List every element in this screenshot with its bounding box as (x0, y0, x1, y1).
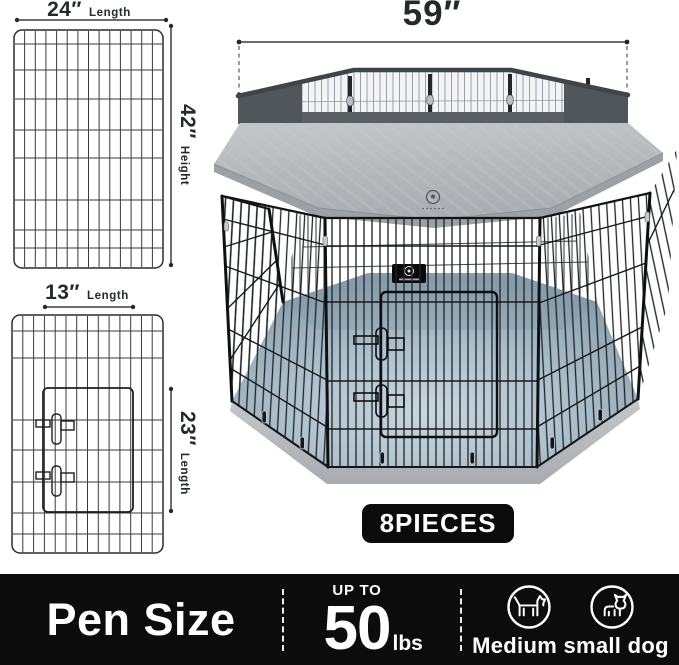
dog-icons-row (506, 584, 635, 630)
small-dog-icon (589, 584, 635, 630)
dog-size-label: Medium small dog (472, 633, 669, 659)
medium-dog-icon (506, 584, 552, 630)
door-panel-width-dimension: 13″ Length (12, 281, 162, 305)
weight-value: 50 (324, 594, 391, 663)
pen-mesh-top (238, 70, 628, 124)
door-panel-height-value: 23″ (175, 411, 199, 446)
pen-size-title: Pen Size (0, 594, 282, 646)
door-panel-height-dimension-line (169, 387, 173, 513)
weight-unit: lbs (392, 634, 422, 653)
door-panel-width-dimension-line (43, 305, 135, 309)
door-panel-width-label: Length (87, 290, 129, 302)
product-infographic: 24″ Length 42″ Height 13″ Length 23″ Len… (0, 0, 679, 665)
large-panel-width-label: Length (89, 7, 131, 19)
weight-value-row: 50 lbs (324, 600, 391, 657)
door-panel-height-dimension: 23″ Length (175, 411, 199, 495)
footer-bar: Pen Size UP TO 50 lbs Medium small dog (0, 574, 679, 665)
door-panel-width-value: 13″ (45, 281, 80, 305)
large-panel-height-label: Height (178, 146, 190, 185)
large-panel-height-dimension-line (169, 24, 173, 267)
large-panel-width-value: 24″ (47, 0, 82, 22)
large-panel-height-dimension: 42″ Height (175, 104, 199, 185)
pen-width-dimension: 59″ (332, 0, 532, 34)
large-panel-drawing (14, 30, 163, 268)
door-panel-drawing (12, 315, 163, 553)
dog-size-section: Medium small dog (462, 580, 679, 659)
large-panel-height-value: 42″ (175, 104, 199, 139)
pieces-badge: 8PIECES (362, 504, 514, 543)
weight-section: UP TO 50 lbs (284, 582, 460, 657)
door-panel-height-label: Length (178, 453, 190, 495)
large-panel-width-dimension: 24″ Length (14, 0, 164, 22)
